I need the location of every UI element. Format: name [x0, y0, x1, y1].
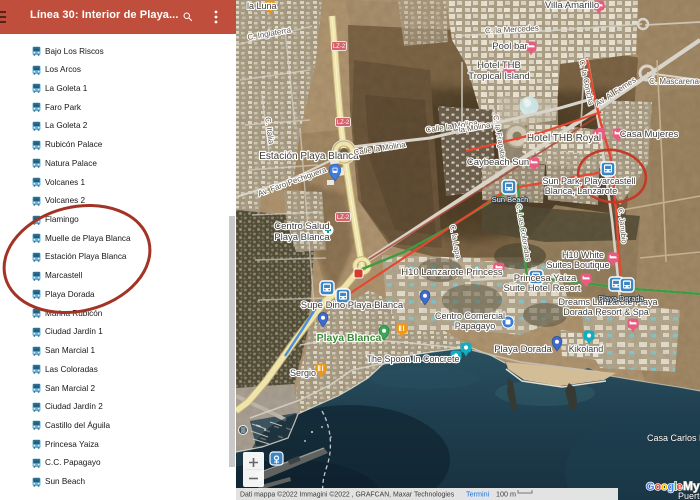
- svg-text:Casa Mujeres: Casa Mujeres: [620, 129, 679, 140]
- svg-text:LZ-2: LZ-2: [337, 120, 350, 126]
- svg-text:Estación Playa Blanca: Estación Playa Blanca: [259, 151, 359, 162]
- svg-text:Casa Carlos Re: Casa Carlos Re: [647, 433, 700, 443]
- svg-text:Blanca, Lanzarote: Blanca, Lanzarote: [545, 186, 618, 196]
- svg-text:H10 Lanzarote Princess: H10 Lanzarote Princess: [401, 267, 503, 278]
- svg-text:Caybeach Sun: Caybeach Sun: [467, 157, 529, 168]
- svg-text:la Luna: la Luna: [247, 1, 277, 11]
- svg-text:e: e: [677, 481, 683, 493]
- svg-text:Villa Amarillo: Villa Amarillo: [545, 0, 599, 11]
- svg-text:The Spoon In Concrete: The Spoon In Concrete: [366, 354, 459, 364]
- svg-text:Playa Blanca: Playa Blanca: [317, 332, 382, 344]
- svg-text:Tropical Island: Tropical Island: [468, 71, 529, 82]
- svg-text:LZ-2: LZ-2: [337, 215, 350, 221]
- svg-text:Centro Salud: Centro Salud: [274, 221, 329, 232]
- svg-text:Centro Comercial: Centro Comercial: [435, 311, 505, 321]
- svg-text:Papagayo: Papagayo: [455, 321, 496, 331]
- svg-text:100 m: 100 m: [496, 490, 516, 499]
- svg-text:Sun Park, Playarcastell: Sun Park, Playarcastell: [542, 176, 635, 186]
- svg-text:C. Mascarena: C. Mascarena: [649, 77, 699, 86]
- svg-text:G: G: [646, 481, 655, 493]
- svg-text:Dorada Resort & Spa: Dorada Resort & Spa: [563, 307, 649, 317]
- svg-text:Hotel THB Royal: Hotel THB Royal: [527, 133, 601, 144]
- svg-text:LZ-2: LZ-2: [333, 44, 346, 50]
- svg-text:My: My: [683, 479, 700, 493]
- svg-text:Supe Dino Playa Blanca: Supe Dino Playa Blanca: [301, 300, 404, 311]
- svg-text:H10 White: H10 White: [562, 250, 604, 260]
- svg-text:Sun Beach: Sun Beach: [492, 195, 529, 204]
- svg-text:Sergio: Sergio: [290, 368, 316, 378]
- svg-text:Termini: Termini: [466, 490, 490, 499]
- svg-text:Suites Boutique: Suites Boutique: [546, 260, 609, 270]
- svg-text:Suite Hotel Resort: Suite Hotel Resort: [503, 283, 580, 294]
- svg-text:Playa Dorada: Playa Dorada: [494, 344, 552, 355]
- svg-text:Hotel THB: Hotel THB: [477, 60, 521, 71]
- svg-text:Pool bar: Pool bar: [492, 41, 527, 52]
- svg-text:Playa Blanca: Playa Blanca: [274, 232, 330, 243]
- svg-text:Kikoland: Kikoland: [569, 344, 604, 354]
- svg-text:Playa Dorada: Playa Dorada: [598, 294, 644, 303]
- svg-text:Dati mappa ©2022 Immagini ©202: Dati mappa ©2022 Immagini ©2022 , GRAFCA…: [240, 491, 455, 499]
